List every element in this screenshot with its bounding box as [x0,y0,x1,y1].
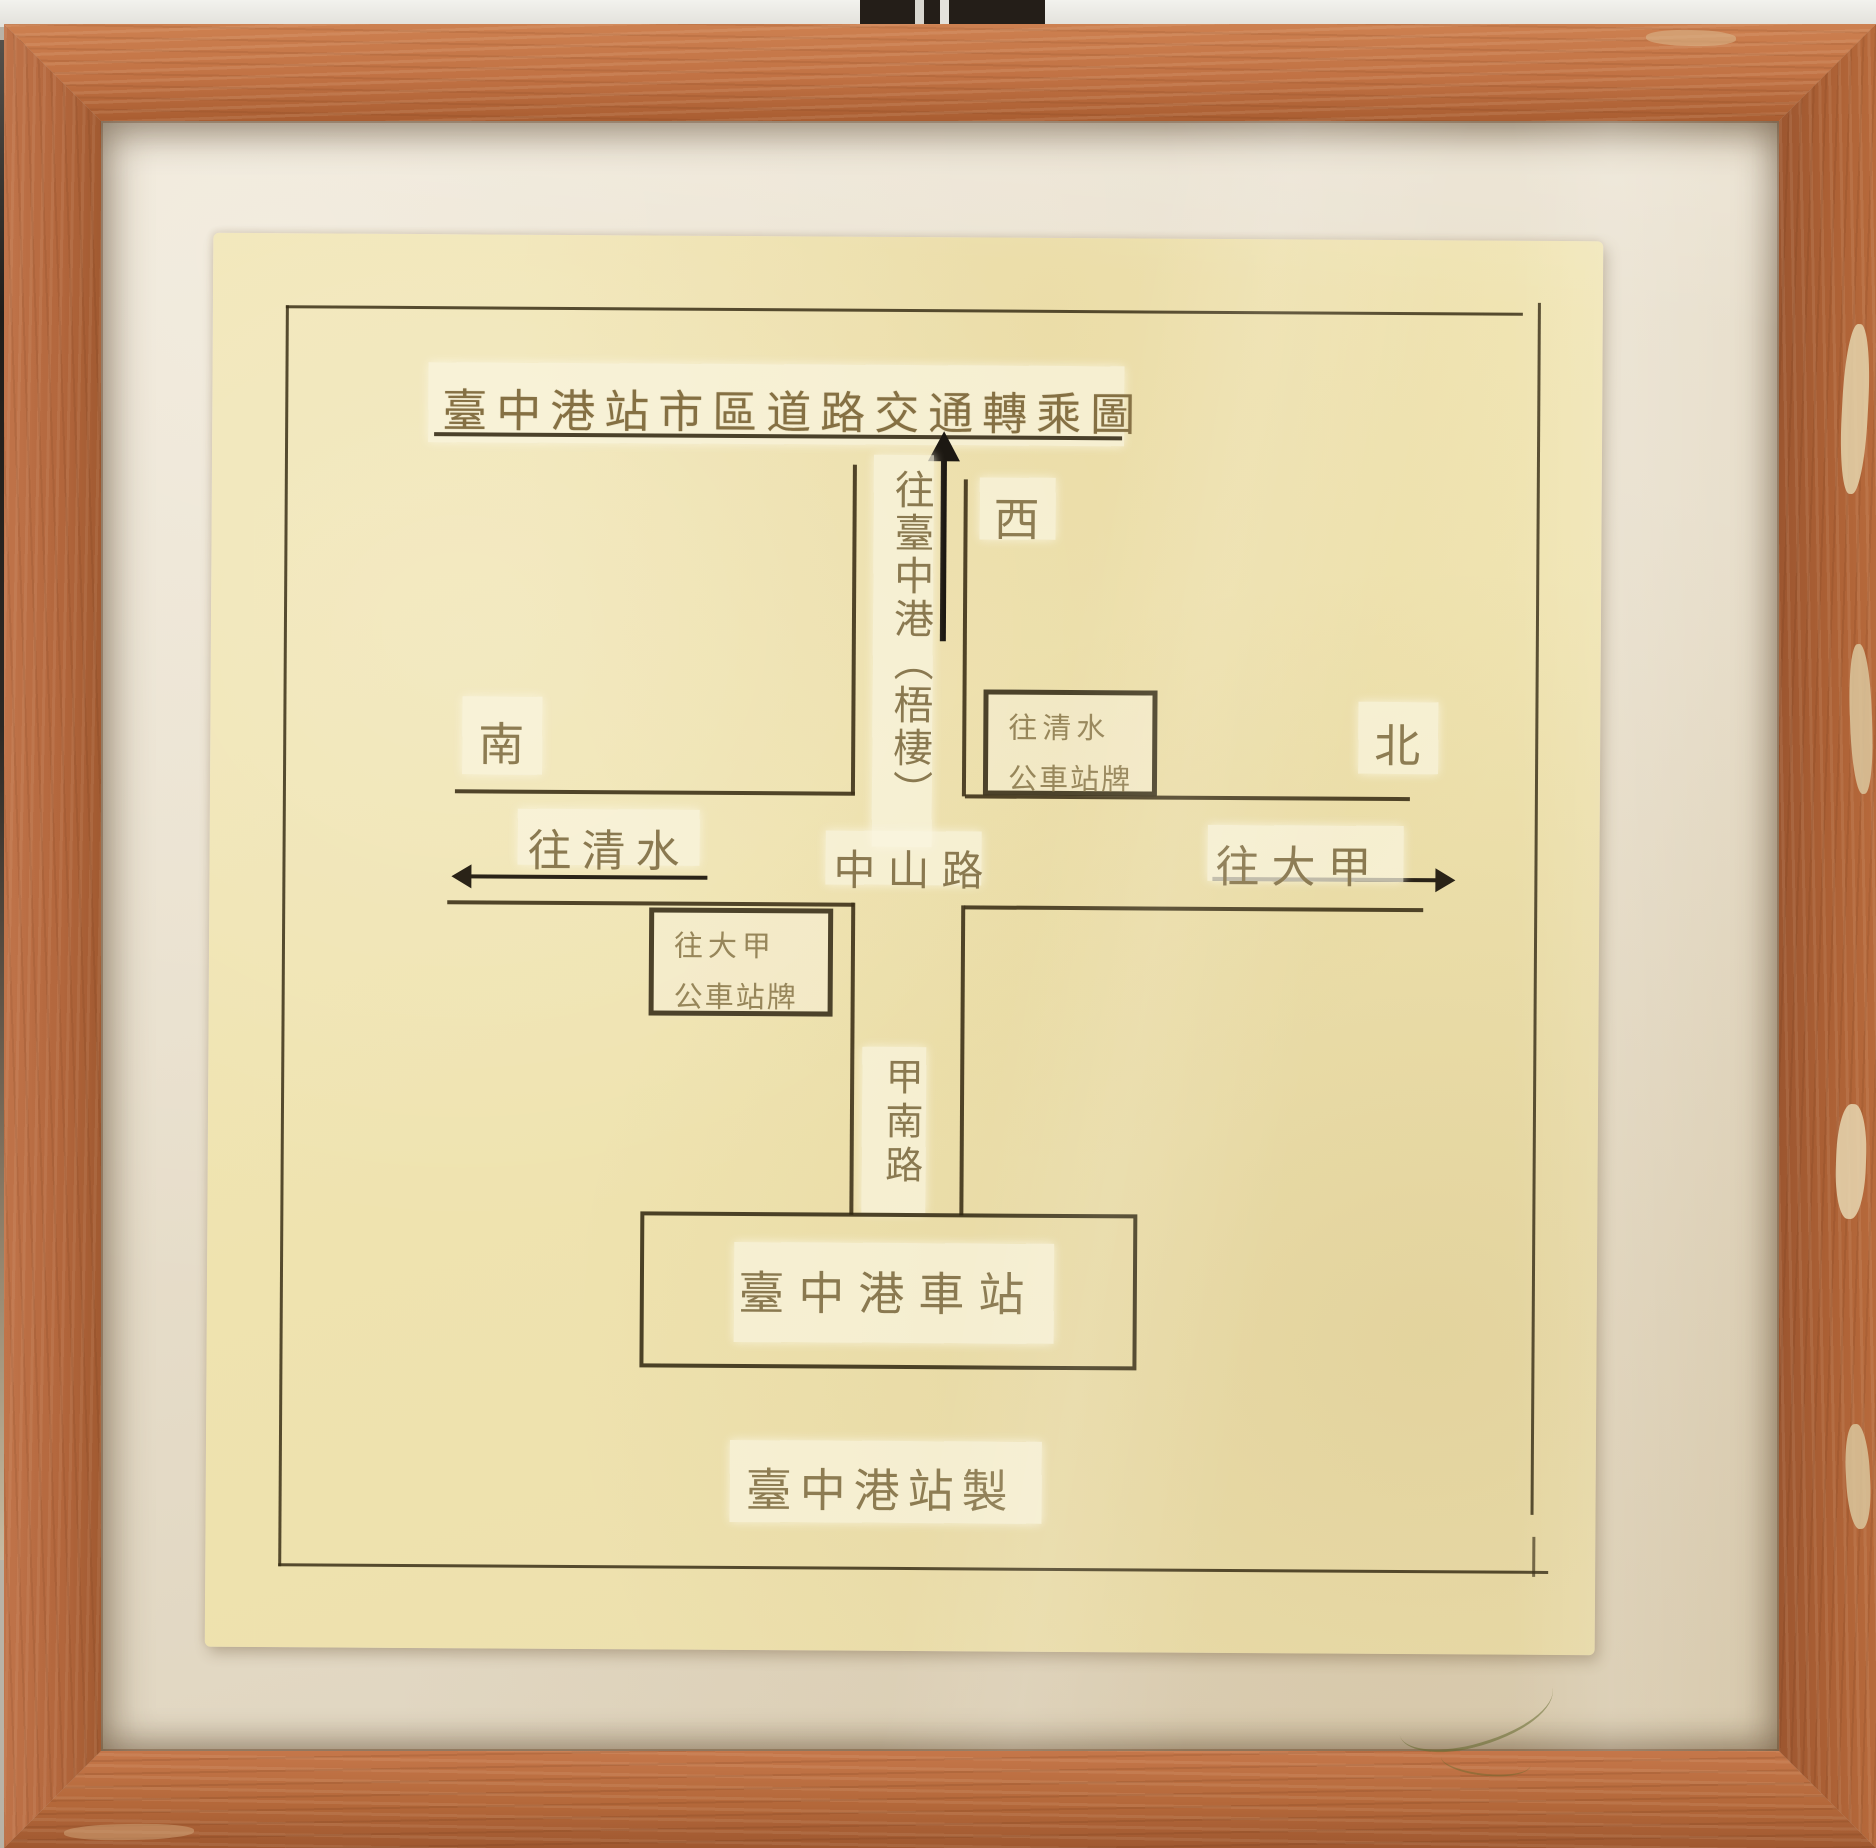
matte-board: 臺中港站市區道路交通轉乘圖 西 南 北 [101,121,1779,1751]
compass-west-label: 西 [993,484,1039,550]
road-line-vertical-left-lower [849,903,855,1215]
road-line-vertical-right-upper [962,479,968,796]
ink-border-left [278,305,289,1566]
ink-border-right [1531,303,1541,1515]
frame-bar-right [1779,24,1876,1848]
bus-stop-box-dajia: 往大甲 公車站牌 [649,907,834,1016]
wooden-frame: 臺中港站市區道路交通轉乘圖 西 南 北 [4,24,1876,1848]
credit-label: 臺中港站製 [745,1454,1015,1522]
station-box: 臺中港車站 [639,1211,1137,1370]
road-line-horizontal-top-left [455,789,855,795]
road-line-horizontal-bottom-left [447,900,854,906]
jianan-road-label: 甲南路 [869,1057,920,1209]
arrow-left-head [451,864,471,888]
station-label: 臺中港車站 [738,1257,1038,1325]
framed-map-photo: 臺中港站市區道路交通轉乘圖 西 南 北 [0,0,1876,1848]
bus-stop-dajia-line1: 往大甲 [674,923,828,966]
to-taichung-port-wuqi-label: 往臺中港（梧棲） [876,469,932,841]
map-paper-sheet: 臺中港站市區道路交通轉乘圖 西 南 北 [205,233,1604,1655]
bus-stop-dajia-line2: 公車站牌 [674,974,828,1017]
compass-north-label: 北 [1374,710,1420,776]
arrow-right-head [1435,868,1455,892]
frame-bar-top [4,24,1876,121]
bus-stop-box-qingshui: 往清水 公車站牌 [983,689,1158,796]
ink-border-bottom [278,1563,1548,1574]
zhongshan-road-label: 中山路 [833,837,995,899]
road-line-vertical-right-lower [959,905,965,1215]
road-line-vertical-left-upper [851,465,857,795]
to-dajia-label: 往大甲 [1215,831,1383,896]
compass-south-label: 南 [478,708,524,774]
ink-border-top [286,305,1523,316]
bus-stop-qingshui-line1: 往清水 [1008,705,1152,748]
bus-stop-qingshui-line2: 公車站牌 [1008,756,1152,799]
road-line-horizontal-bottom-right [964,905,1423,912]
frame-bar-bottom [4,1751,1876,1848]
arrow-up-shaft [940,459,947,641]
frame-bar-left [4,24,101,1848]
to-qingshui-label: 往清水 [527,815,689,880]
